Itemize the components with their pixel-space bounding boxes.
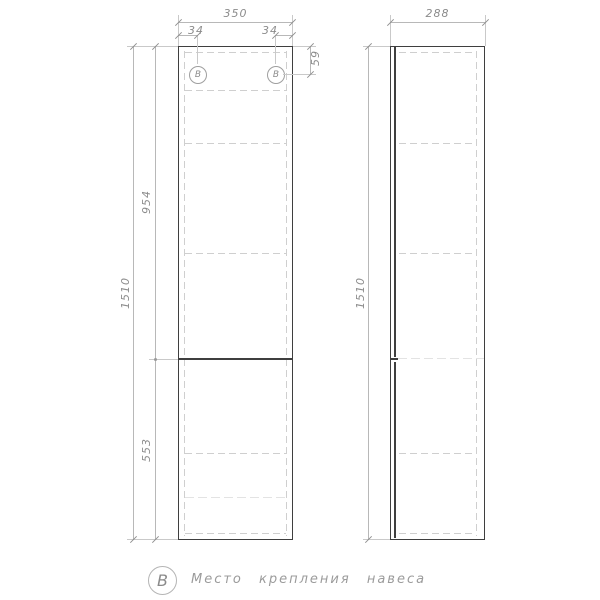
side-door-edge-upper bbox=[394, 47, 396, 357]
dim-line-depth bbox=[390, 22, 485, 23]
dim-mount-drop-label: 59 bbox=[309, 42, 323, 74]
front-shelf-line-1 bbox=[185, 143, 286, 144]
side-hidden-edge-right bbox=[476, 51, 477, 536]
legend-symbol-circle: B bbox=[148, 566, 177, 595]
front-cabinet-outline bbox=[178, 46, 293, 540]
mount-point-left: B bbox=[189, 66, 207, 84]
dim-right-offset-label: 34 bbox=[257, 24, 283, 38]
mount-point-right-label: B bbox=[273, 70, 279, 80]
front-door-divider-line bbox=[178, 358, 293, 360]
side-door-gap bbox=[390, 358, 398, 360]
ext-line bbox=[275, 36, 276, 64]
side-shelf-line-1 bbox=[399, 143, 476, 144]
front-hidden-edge-right bbox=[286, 51, 287, 536]
front-shelf-line-3 bbox=[185, 453, 286, 454]
side-door-edge-lower bbox=[394, 362, 396, 538]
front-shelf-line-2 bbox=[185, 253, 286, 254]
dim-depth-label: 288 bbox=[390, 7, 485, 21]
dim-lower-height-label: 553 bbox=[140, 434, 154, 466]
technical-drawing-canvas: B B 350 34 34 59 bbox=[0, 0, 600, 600]
dim-line-width bbox=[178, 22, 293, 23]
dim-left-offset-label: 34 bbox=[183, 24, 209, 38]
legend-caption: Место крепления навеса bbox=[191, 572, 426, 587]
dim-upper-height-label: 954 bbox=[140, 186, 154, 218]
front-hanger-strip-line bbox=[185, 90, 286, 91]
dim-dot bbox=[154, 358, 157, 361]
dim-width-label: 350 bbox=[178, 7, 293, 21]
dim-line-side-total-height bbox=[368, 46, 369, 540]
front-hidden-top-line bbox=[185, 52, 286, 53]
side-shelf-line-2 bbox=[399, 253, 476, 254]
front-hidden-edge-left bbox=[184, 51, 185, 536]
legend-symbol: B bbox=[157, 571, 168, 590]
mount-point-right: B bbox=[267, 66, 285, 84]
front-shelf-line-4 bbox=[185, 497, 286, 498]
dim-line-sections bbox=[155, 46, 156, 540]
dim-front-total-height-label: 1510 bbox=[119, 273, 133, 313]
ext-line bbox=[197, 36, 198, 64]
front-hidden-bottom-line bbox=[185, 533, 286, 534]
side-shelf-line-3 bbox=[399, 453, 476, 454]
side-hidden-top-line bbox=[399, 52, 476, 53]
side-hidden-bottom-line bbox=[399, 533, 476, 534]
mount-point-left-label: B bbox=[195, 70, 201, 80]
dim-line-total-height bbox=[133, 46, 134, 540]
side-cabinet-outline bbox=[390, 46, 485, 540]
side-divider-hidden-line bbox=[398, 358, 484, 359]
dim-side-total-height-label: 1510 bbox=[354, 273, 368, 313]
